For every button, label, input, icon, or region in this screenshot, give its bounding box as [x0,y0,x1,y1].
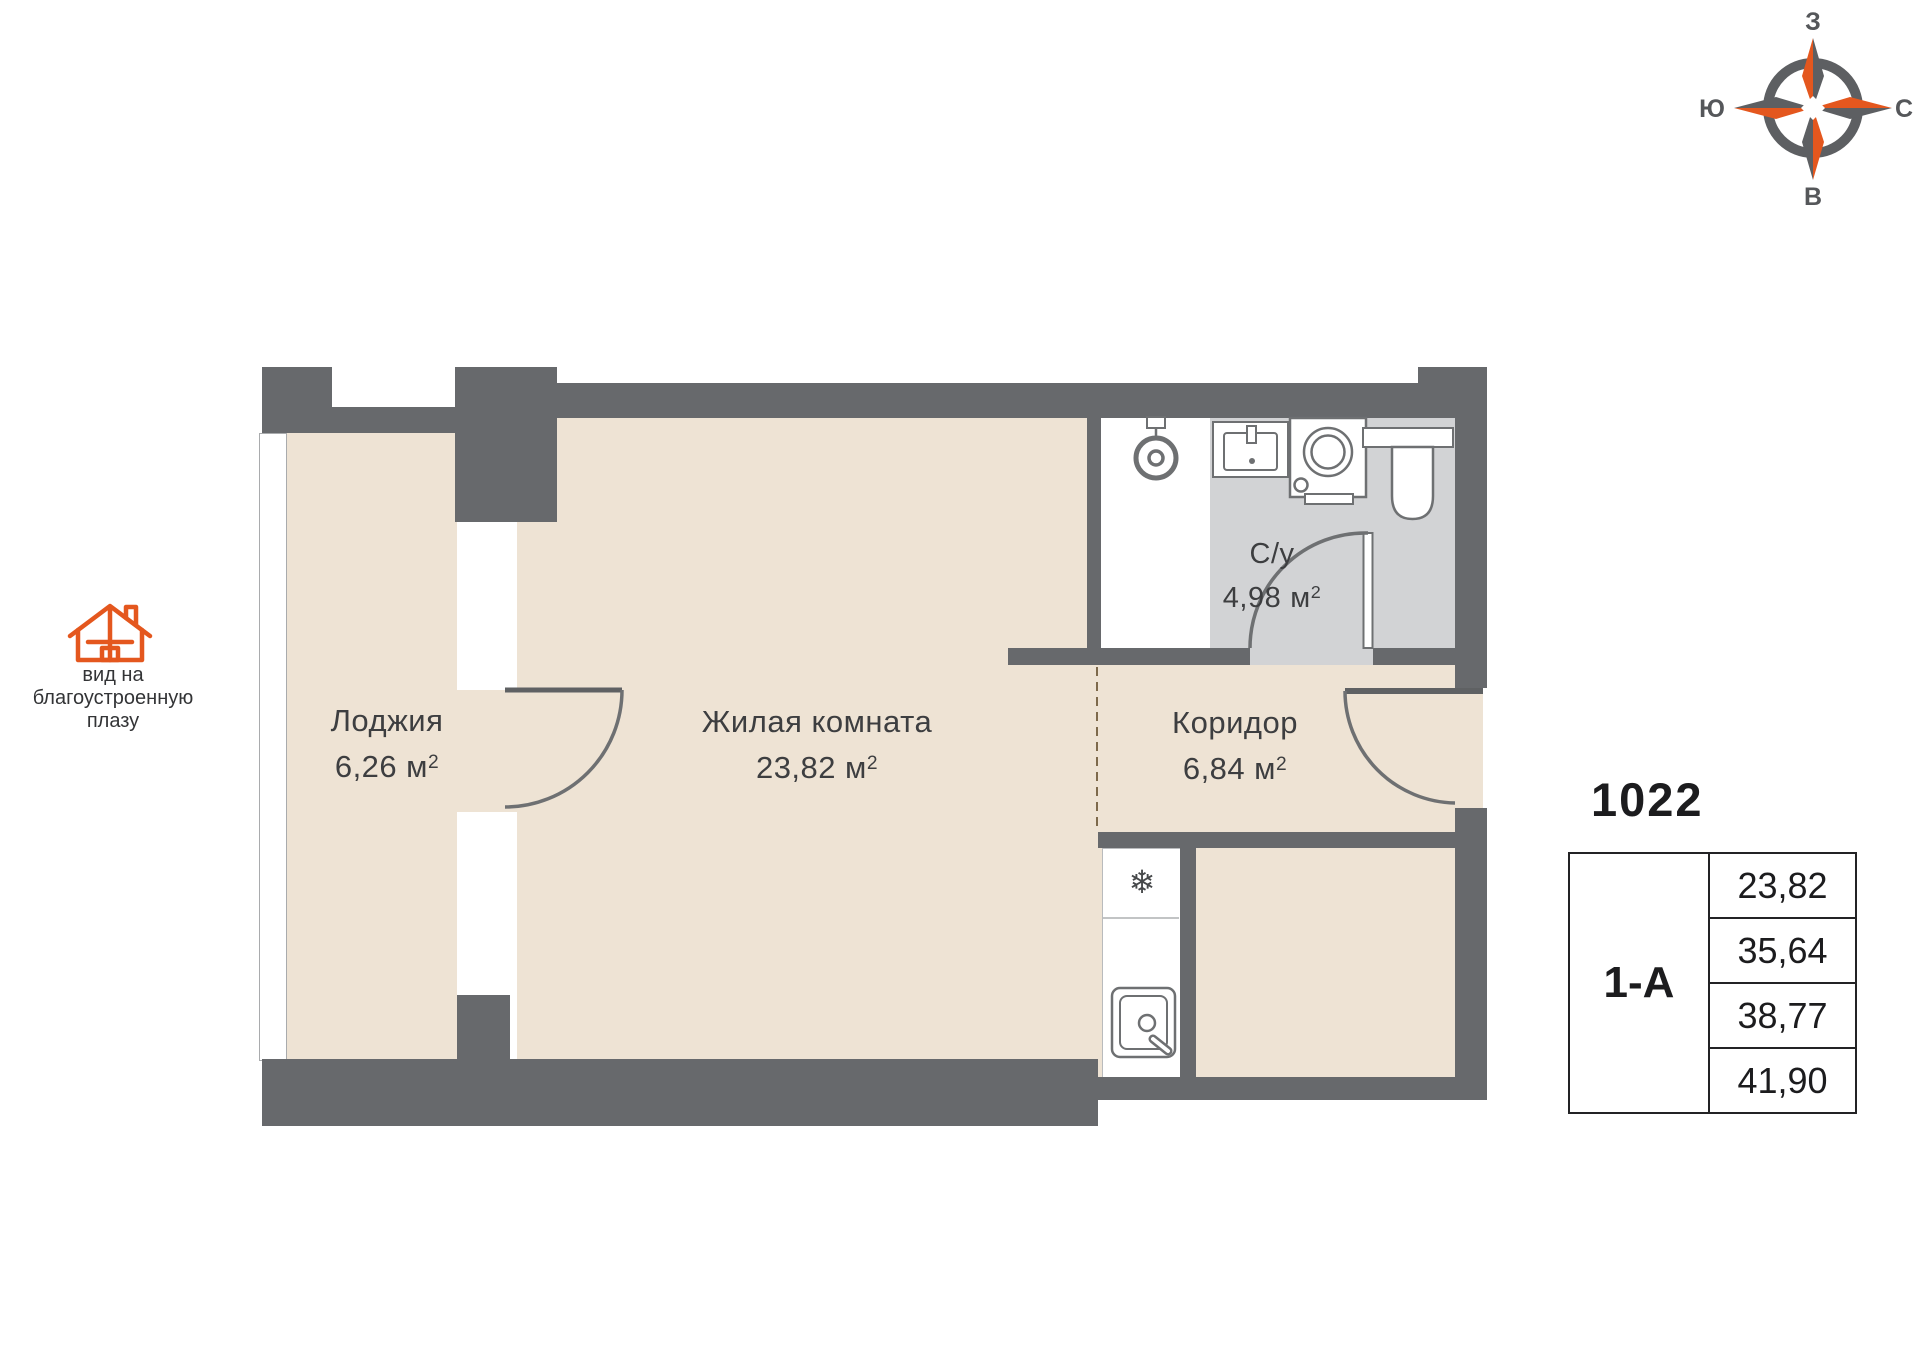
fridge-icon: ❄ [1129,864,1156,900]
plan-linework: ❄ З В Ю С [0,0,1920,1362]
room-label-corridor: Коридор 6,84м2 [1135,704,1335,787]
room-label-bathroom: С/у 4,98м2 [1192,538,1352,615]
house-icon [70,606,150,660]
view-note: вид на благоустроенную плазу [5,664,221,733]
compass-rose: З В Ю С [1699,8,1913,211]
room-label-living: Жилая комната 23,82м2 [617,703,1017,786]
view-note-line3: плазу [5,710,221,733]
floor-plan-page: ❄ З В Ю С [0,0,1920,1362]
room-name-corridor: Коридор [1135,704,1335,741]
washing-machine-icon [1290,418,1366,504]
areas-column: 23,82 35,64 38,77 41,90 [1710,854,1855,1112]
compass-label-north: С [1895,95,1913,123]
room-area-corridor: 6,84м2 [1135,746,1335,787]
area-row-total: 41,90 [1710,1047,1855,1112]
apartment-info-table: 1-А 23,82 35,64 38,77 41,90 [1568,852,1857,1114]
shower-icon [1136,417,1176,478]
entrance-door [1345,691,1483,803]
area-row-reduced: 38,77 [1710,982,1855,1047]
compass-label-west: З [1805,8,1821,36]
kitchen-sink-icon [1112,988,1175,1057]
compass-label-south: Ю [1699,95,1725,123]
room-label-loggia: Лоджия 6,26м2 [277,702,497,785]
compass-label-east: В [1804,183,1822,211]
washbasin-icon [1213,422,1288,477]
area-row-living: 23,82 [1710,854,1855,917]
room-area-bathroom: 4,98м2 [1192,576,1352,615]
room-name-living: Жилая комната [617,703,1017,740]
area-row-without-loggia: 35,64 [1710,917,1855,982]
view-note-line2: благоустроенную [5,687,221,710]
room-name-loggia: Лоджия [277,702,497,739]
plan-type-cell: 1-А [1570,854,1710,1112]
loggia-door [505,690,622,807]
room-area-living: 23,82м2 [617,745,1017,786]
view-note-line1: вид на [5,664,221,687]
room-name-bathroom: С/у [1192,538,1352,571]
room-area-loggia: 6,26м2 [277,744,497,785]
toilet-icon [1363,428,1453,519]
unit-number: 1022 [1591,772,1704,827]
